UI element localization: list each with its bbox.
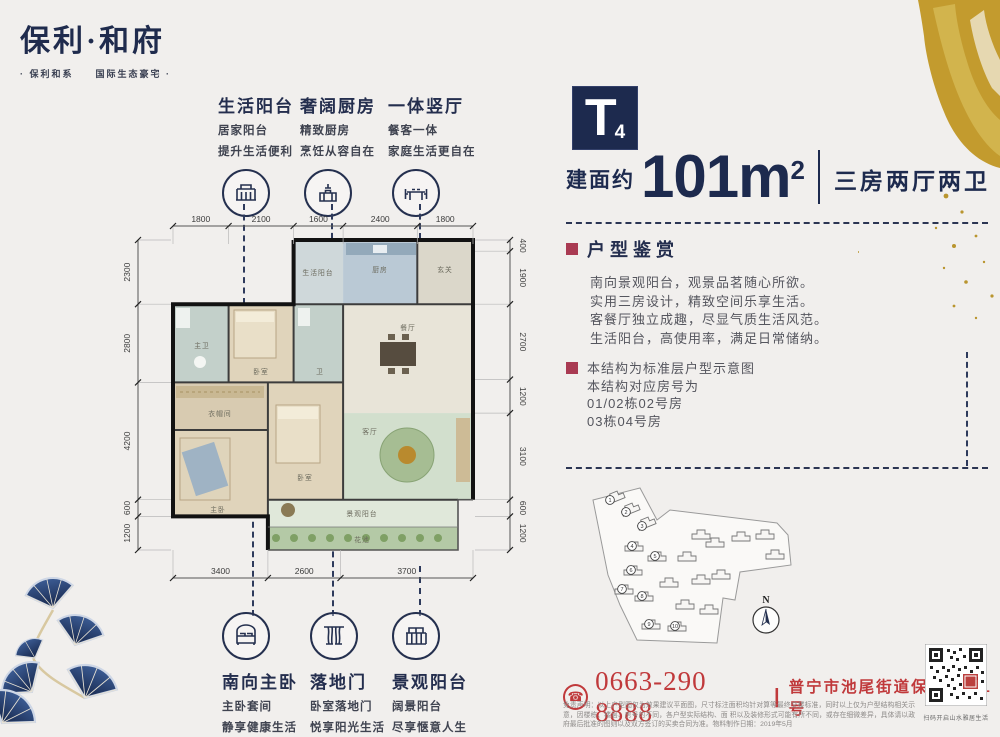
room-label: 卧室 [253, 367, 269, 376]
floor-plan: 生活阳台 厨房 玄关 餐厅 客厅 主卫 卧室 卫 衣帽间 主卧 卧室 景观阳台 … [118, 210, 548, 615]
siteplan-marker: 2 [624, 510, 627, 516]
feature-line: 阔景阳台 [392, 698, 502, 714]
compass-icon: N [753, 595, 779, 633]
siteplan-marker: 7 [620, 587, 623, 593]
unit-type-number: 4 [615, 122, 626, 144]
appreciation-line: 实用三房设计，精致空间乐享生活。 [590, 293, 828, 312]
section-bullet [566, 243, 578, 255]
dim-label: 3100 [518, 447, 528, 466]
feature-title: 一体竖厅 [388, 92, 498, 117]
disclaimer: 免责声明：以上户型图仅为效果建议平面图，尺寸标注面积均针对算等最终交楼标准，同时… [563, 701, 915, 730]
area-superscript: 2 [790, 155, 803, 185]
dim-label: 1800 [191, 214, 210, 224]
room-label: 玄关 [437, 265, 453, 274]
room-label: 卧室 [297, 473, 313, 482]
feature-line: 家庭生活更自在 [388, 143, 498, 159]
dashed-vertical-decoration [966, 352, 968, 466]
area-headline: 建面约 101m2 三房两厅两卫 [566, 150, 990, 204]
dim-label: 1200 [518, 524, 528, 543]
qr-block: 扫码开启山水雅居生活 [922, 644, 990, 722]
appreciation-section: 户型鉴赏 南向景观阳台，观景品茗随心所欲。 实用三房设计，精致空间乐享生活。 客… [566, 236, 828, 348]
siteplan-marker: 4 [630, 544, 633, 550]
unit-layout: 三房两厅两卫 [834, 162, 990, 196]
appreciation-line: 南向景观阳台，观景品茗随心所欲。 [590, 274, 828, 293]
room-label: 花池 [354, 535, 370, 544]
area-value: 101m2 [641, 150, 804, 204]
appreciation-line: 客餐厅独立成趣，尽显气质生活风范。 [590, 311, 828, 330]
siteplan-marker: 10 [672, 624, 678, 630]
appreciation-line: 生活阳台，高使用率，满足日常储纳。 [590, 330, 828, 349]
room-label: 主卫 [194, 341, 210, 350]
compass-north-label: N [762, 595, 770, 606]
dim-label: 2300 [122, 262, 132, 281]
siteplan-marker: 9 [647, 622, 650, 628]
feature-dining-hall: 一体竖厅 餐客一体 家庭生活更自在 [388, 92, 498, 217]
dim-label: 3700 [397, 566, 416, 576]
siteplan-marker: 3 [640, 524, 643, 530]
feature-view-balcony: 景观阳台 阔景阳台 尽享惬意人生 [392, 612, 502, 735]
dim-label: 400 [518, 239, 528, 253]
dashed-separator [566, 222, 988, 224]
note-line: 03栋04号房 [587, 413, 755, 431]
room-label: 主卧 [210, 505, 226, 514]
feature-title: 景观阳台 [392, 668, 502, 693]
section-title: 户型鉴赏 [587, 236, 679, 262]
curtain-icon [310, 612, 358, 660]
structure-note-section: 本结构为标准层户型示意图 本结构对应房号为 01/02栋02号房 03栋04号房 [566, 360, 755, 430]
feature-line: 尽享惬意人生 [392, 719, 502, 735]
room-label: 生活阳台 [302, 268, 333, 277]
brand-tagline: · 保利和系 国际生态豪宅 · [20, 67, 171, 80]
dim-label: 1200 [122, 523, 132, 542]
dim-label: 2800 [122, 334, 132, 353]
note-line: 本结构对应房号为 [587, 378, 755, 396]
siteplan-marker: 1 [608, 498, 611, 504]
poster-page: 保利·和府 · 保利和系 国际生态豪宅 · 生活阳台 居家阳台 提升生活便利 奢… [0, 0, 1000, 737]
headline-divider [818, 150, 820, 204]
dim-label: 2100 [252, 214, 271, 224]
room-label: 卫 [316, 368, 324, 376]
dim-label: 2600 [295, 566, 314, 576]
dim-label: 2700 [518, 332, 528, 351]
dim-label: 1800 [436, 214, 455, 224]
brand-logo: 保利·和府 · 保利和系 国际生态豪宅 · [20, 16, 171, 80]
qr-code [925, 644, 987, 706]
bed-icon [222, 612, 270, 660]
fans-decoration [0, 548, 135, 737]
dim-label: 600 [122, 501, 132, 515]
dim-label: 600 [518, 501, 528, 515]
dim-label: 1600 [309, 214, 328, 224]
dim-label: 1200 [518, 387, 528, 406]
room-label: 衣帽间 [208, 409, 231, 418]
brand-name: 保利·和府 [20, 16, 171, 60]
unit-type-letter: T [585, 92, 617, 144]
section-bullet [566, 362, 578, 374]
area-prefix: 建面约 [566, 164, 635, 194]
siteplan-marker: 6 [629, 568, 632, 574]
note-line: 本结构为标准层户型示意图 [587, 360, 755, 378]
dim-label: 1900 [518, 268, 528, 287]
siteplan-marker: 5 [653, 554, 656, 560]
siteplan-marker: 8 [640, 594, 643, 600]
room-label: 客厅 [362, 427, 378, 436]
unit-type-badge: T 4 [572, 86, 638, 150]
room-label: 景观阳台 [346, 509, 377, 518]
site-plan: 1 2 3 4 5 6 7 8 9 10 N [580, 480, 970, 665]
dashed-separator [566, 467, 988, 469]
room-label: 餐厅 [400, 323, 416, 332]
feature-line: 餐客一体 [388, 122, 498, 138]
dim-label: 3400 [211, 566, 230, 576]
dim-label: 4200 [122, 431, 132, 450]
note-line: 01/02栋02号房 [587, 395, 755, 413]
dim-label: 2400 [371, 214, 390, 224]
qr-caption: 扫码开启山水雅居生活 [922, 713, 990, 722]
balcony-railing-icon [392, 612, 440, 660]
room-label: 厨房 [372, 265, 388, 274]
